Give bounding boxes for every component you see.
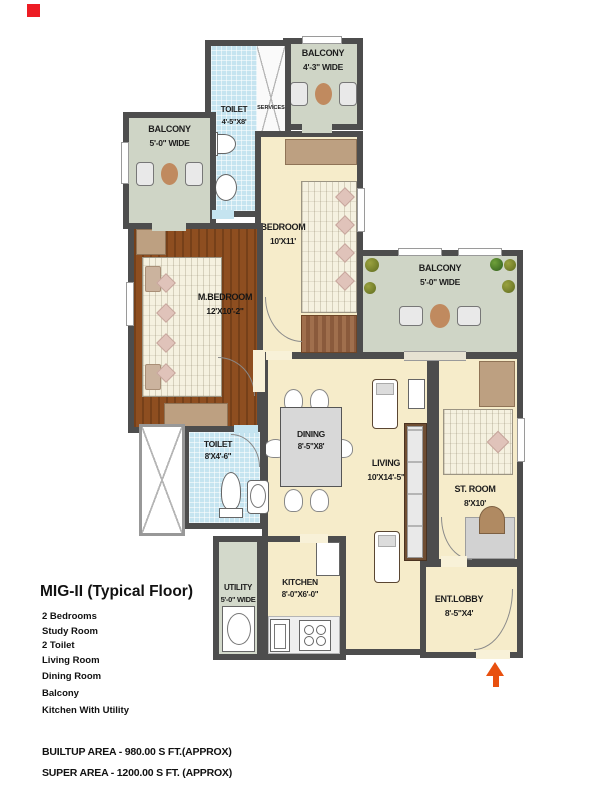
- balcony-table-icon: [430, 304, 450, 328]
- wc-base-icon: [219, 508, 243, 518]
- door-arc: [218, 357, 255, 396]
- legend-heading: MIG-II (Typical Floor): [40, 583, 193, 601]
- balcony-chair-icon: [339, 82, 357, 106]
- window: [357, 188, 365, 232]
- legend-feature-list: 2 Bedrooms Study Room 2 Toilet Living Ro…: [42, 610, 129, 718]
- window: [121, 142, 129, 184]
- legend-feature: Kitchen With Utility: [42, 704, 129, 719]
- balcony-chair-icon: [136, 162, 154, 186]
- armchair-icon: [372, 379, 398, 429]
- room-name: TOILET: [211, 104, 257, 116]
- wall-opening: [302, 124, 332, 133]
- entrance-arrow-icon: [486, 662, 506, 688]
- toilet-top-label: TOILET 4'-5"X8': [211, 104, 257, 127]
- balcony-chair-icon: [290, 82, 308, 106]
- wall-opening: [234, 425, 258, 433]
- dining-table: DINING 8'-5"X8': [280, 407, 342, 487]
- balcony-furniture: [363, 304, 517, 328]
- door-arc: [231, 434, 260, 467]
- armchair-icon: [374, 531, 400, 583]
- bed-decor: [159, 306, 173, 320]
- wall-opening: [404, 351, 466, 361]
- wall-opening: [266, 351, 292, 360]
- plant-icon: [490, 258, 503, 271]
- balcony-top-label: BALCONY 4'-3" WIDE: [289, 47, 357, 73]
- room-name: BEDROOM: [255, 221, 311, 235]
- plant-icon: [504, 259, 516, 271]
- bed-decor: [490, 434, 506, 450]
- room-balcony-left: BALCONY 5'-0" WIDE: [123, 112, 216, 229]
- room-dims: 4'-5"X8': [211, 116, 257, 127]
- window: [302, 36, 342, 44]
- room-name: KITCHEN: [268, 576, 332, 589]
- plant-icon: [364, 282, 376, 294]
- room-name: ST. ROOM: [439, 483, 511, 497]
- wall-opening: [152, 222, 186, 231]
- room-dims: 12'X10'-2": [190, 305, 260, 318]
- room-toilet-mid: TOILET 8'X4'-6": [183, 426, 266, 529]
- toilet-top-floor: TOILET 4'-5"X8': [211, 46, 257, 211]
- door-arc: [441, 517, 472, 560]
- balcony-chair-icon: [457, 306, 481, 326]
- window: [458, 248, 502, 256]
- kitchen-label: KITCHEN 8'-0"X6'-0": [268, 576, 332, 601]
- door-arc: [474, 589, 513, 650]
- plant-icon: [502, 280, 515, 293]
- legend-feature: 2 Toilet: [42, 639, 129, 654]
- balcony-left-label: BALCONY 5'-0" WIDE: [129, 123, 210, 149]
- room-balcony-top: BALCONY 4'-3" WIDE: [283, 38, 363, 130]
- room-dims: 8'-5"X8': [281, 441, 341, 453]
- wardrobe-icon: [479, 361, 515, 407]
- legend-feature: Dining Room: [42, 670, 129, 685]
- fridge-icon: [316, 542, 340, 576]
- washing-machine-icon: [222, 606, 255, 652]
- super-area-line: SUPER AREA - 1200.00 S FT. (APPROX): [42, 763, 232, 784]
- room-name: BALCONY: [129, 123, 210, 137]
- bed-decor: [338, 274, 352, 288]
- wardrobe-icon: [136, 229, 166, 255]
- plant-icon: [365, 258, 379, 272]
- legend-feature: Living Room: [42, 654, 129, 669]
- balcony-table-icon: [315, 83, 332, 105]
- room-dims: 8'-0"X6'-0": [268, 589, 332, 601]
- window: [126, 282, 134, 326]
- balcony-table-icon: [161, 163, 178, 185]
- sofa-icon: [404, 423, 427, 561]
- room-dims: 5'-0" WIDE: [211, 594, 265, 605]
- stove-icon: [299, 620, 331, 651]
- room-dims: 5'-0" WIDE: [363, 276, 517, 289]
- bed-decor: [159, 276, 173, 290]
- balcony-furniture: [129, 162, 210, 186]
- room-dims: 8'X10': [439, 497, 511, 510]
- room-bedroom: BEDROOM 10'X11': [255, 131, 363, 358]
- legend-feature: Study Room: [42, 625, 129, 640]
- room-m-bedroom: M.BEDROOM 12'X10'-2": [128, 223, 263, 433]
- dining-chair-icon: [284, 489, 303, 512]
- room-name: M.BEDROOM: [190, 291, 260, 305]
- bed-decor: [338, 190, 352, 204]
- builtup-area-line: BUILTUP AREA - 980.00 S FT.(APPROX): [42, 742, 232, 763]
- services-label: SERVICES: [253, 104, 289, 112]
- balcony-furniture: [289, 82, 357, 106]
- wardrobe-icon: [285, 139, 357, 165]
- room-st-room: ST. ROOM 8'X10': [433, 353, 523, 565]
- room-dims: 10'X11': [255, 235, 311, 248]
- wall-opening: [300, 534, 328, 543]
- wall-opening: [476, 650, 510, 659]
- bed-decor: [338, 246, 352, 260]
- doormat-icon: [465, 517, 515, 559]
- floor-plan: BALCONY 4'-3" WIDE TOILET 4'-5"X8' SERVI…: [0, 0, 600, 800]
- room-name: DINING: [281, 428, 341, 441]
- balcony-chair-icon: [399, 306, 423, 326]
- utility-label: UTILITY 5'-0" WIDE: [211, 582, 265, 605]
- bed-decor: [159, 336, 173, 350]
- shaft-hatch: [139, 424, 185, 536]
- legend-feature: 2 Bedrooms: [42, 610, 129, 625]
- tv-unit-icon: [408, 379, 425, 409]
- bedroom-label: BEDROOM 10'X11': [255, 221, 311, 247]
- bed-decor: [159, 366, 173, 380]
- sink-icon: [270, 619, 290, 652]
- wc-icon: [221, 472, 241, 510]
- wall-opening: [253, 350, 265, 392]
- bed-decor: [338, 218, 352, 232]
- room-name: SERVICES: [253, 104, 289, 112]
- room-balcony-right: BALCONY 5'-0" WIDE: [357, 250, 523, 358]
- window: [398, 248, 442, 256]
- dining-label: DINING 8'-5"X8': [281, 428, 341, 453]
- room-kitchen: KITCHEN 8'-0"X6'-0": [262, 536, 346, 660]
- washbasin-icon: [215, 174, 237, 201]
- bed-icon: [142, 257, 222, 397]
- kitchen-counter: [268, 616, 340, 654]
- door-arc: [265, 297, 302, 342]
- wall-opening: [212, 210, 234, 219]
- area-summary: BUILTUP AREA - 980.00 S FT.(APPROX) SUPE…: [42, 742, 232, 784]
- washbasin-icon: [247, 480, 269, 514]
- dining-chair-icon: [310, 489, 329, 512]
- rug-icon: [301, 315, 357, 353]
- room-ent-lobby: ENT.LOBBY 8'-5"X4': [420, 561, 523, 658]
- room-utility: UTILITY 5'-0" WIDE: [213, 536, 263, 660]
- window: [517, 418, 525, 462]
- room-dims: 4'-3" WIDE: [289, 61, 357, 74]
- room-name: UTILITY: [211, 582, 265, 594]
- bed-icon: [443, 409, 513, 475]
- st-room-label: ST. ROOM 8'X10': [439, 483, 511, 509]
- wall-opening: [441, 556, 467, 567]
- m-bedroom-label: M.BEDROOM 12'X10'-2": [190, 291, 260, 317]
- legend-feature: Balcony: [42, 687, 129, 702]
- room-name: BALCONY: [289, 47, 357, 61]
- red-marker: [27, 4, 40, 17]
- room-dims: 5'-0" WIDE: [129, 137, 210, 150]
- balcony-chair-icon: [185, 162, 203, 186]
